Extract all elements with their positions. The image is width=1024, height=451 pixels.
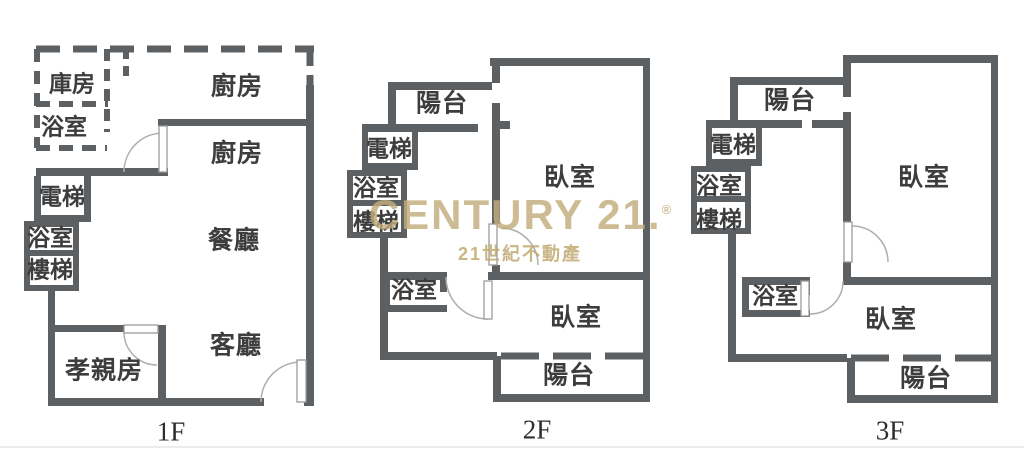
room-label-kitchen-lower-1f: 廚房	[211, 142, 263, 167]
room-label-bathroom-upper-1f: 浴室	[41, 116, 87, 139]
floor-label-2f: 2F	[523, 415, 552, 446]
kitchen-door	[124, 126, 167, 172]
bedroom-main-door	[489, 224, 538, 265]
room-label-bathroom-left-3f: 浴室	[696, 175, 742, 198]
room-label-dining-1f: 餐廳	[208, 229, 260, 254]
room-label-elevator-3f: 電梯	[710, 134, 756, 157]
floor-label-3f: 3F	[876, 416, 905, 447]
room-label-stairs-3f: 樓梯	[696, 209, 742, 232]
room-label-bathroom-mid-3f: 浴室	[752, 285, 798, 308]
room-label-balcony-top-2f: 陽台	[416, 92, 468, 117]
room-label-balcony-bottom-3f: 陽台	[900, 367, 952, 392]
room-label-living-1f: 客廳	[210, 334, 262, 359]
room-label-storage-1f: 庫房	[49, 73, 95, 96]
entry-door	[261, 360, 306, 402]
bedroom-main-door	[844, 222, 888, 262]
room-label-elevator-1f: 電梯	[39, 186, 85, 209]
room-label-stairs-2f: 樓梯	[353, 211, 399, 234]
room-label-bedroom-second-2f: 臥室	[550, 306, 602, 331]
room-label-bedroom-main-2f: 臥室	[544, 166, 596, 191]
floorplan-drawing	[0, 0, 1024, 451]
room-label-balcony-bottom-2f: 陽台	[543, 364, 595, 389]
room-label-bathroom-mid-2f: 浴室	[391, 279, 437, 302]
room-label-stairs-1f: 樓梯	[27, 259, 73, 282]
floor-label-1f: 1F	[157, 417, 186, 448]
room-label-bathroom-left-1f: 浴室	[27, 227, 73, 250]
room-label-bedroom-second-3f: 臥室	[865, 308, 917, 333]
floorplan-sheet: 庫房 浴室 廚房 廚房 電梯 浴室 樓梯 餐廳 客廳 孝親房 1F 陽台 電梯 …	[0, 0, 1024, 451]
bedroom-second-door	[801, 281, 843, 316]
image-bottom-edge	[0, 446, 1024, 448]
room-label-bedroom-main-3f: 臥室	[898, 166, 950, 191]
room-label-bathroom-left-2f: 浴室	[353, 177, 399, 200]
room-label-kitchen-upper-1f: 廚房	[211, 75, 263, 100]
room-label-elevator-2f: 電梯	[366, 138, 412, 161]
bedroom-second-door	[446, 277, 492, 319]
room-label-balcony-top-3f: 陽台	[764, 89, 816, 114]
room-label-parents-1f: 孝親房	[65, 359, 143, 384]
